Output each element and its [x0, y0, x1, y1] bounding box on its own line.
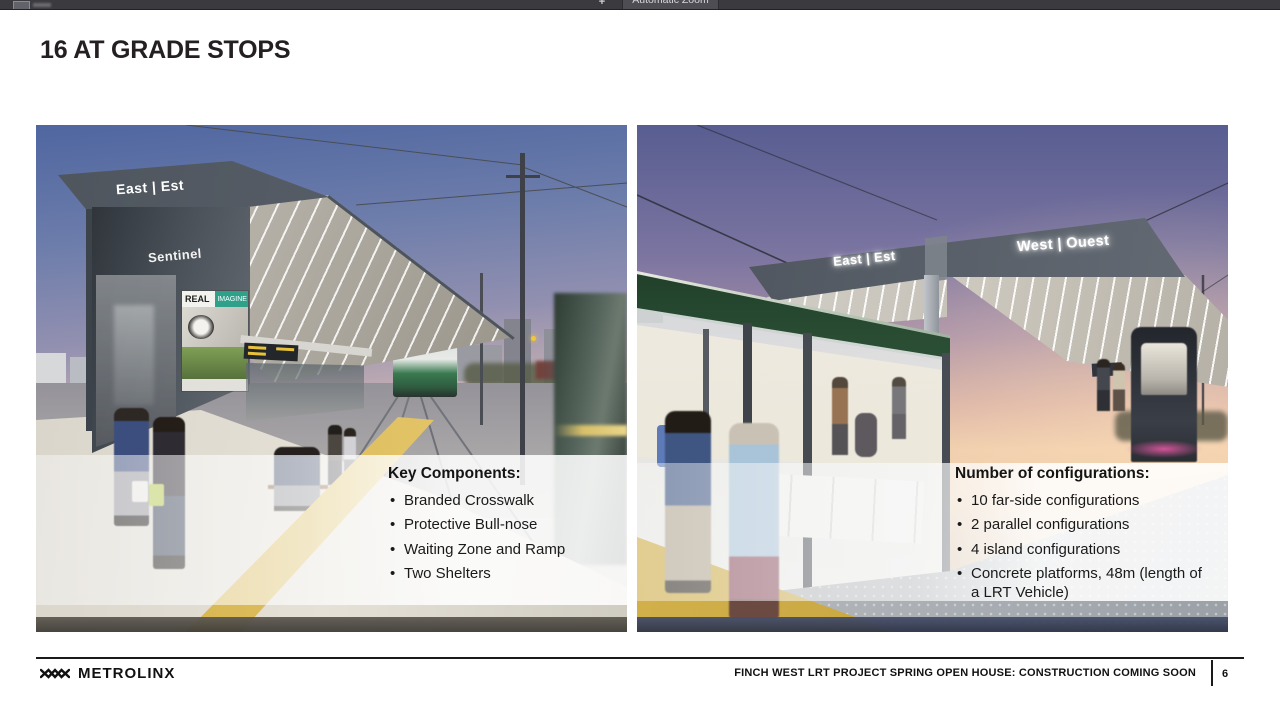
footer-rule	[36, 657, 1244, 659]
page-number-input[interactable]	[13, 1, 30, 10]
next-train-display-illustration	[244, 343, 299, 362]
list-item: Protective Bull-nose	[388, 515, 620, 534]
footer-divider	[1211, 660, 1213, 686]
person-illustration	[1113, 363, 1125, 411]
ad-word-imagine: IMAGINE	[215, 291, 248, 307]
crosswalk-signal-illustration	[531, 336, 536, 341]
list-item: Concrete platforms, 48m (length of a LRT…	[955, 564, 1211, 602]
right-station-rendering: East | Est West | Ouest Number of config…	[637, 125, 1228, 632]
ad-url-bar	[182, 379, 248, 391]
image-bottom-band	[36, 617, 627, 632]
callout-list: Branded Crosswalk Protective Bull-nose W…	[388, 491, 620, 583]
page-count-label	[33, 3, 51, 7]
brand-wordmark: METROLINX	[78, 665, 175, 682]
slide-title: 16 AT GRADE STOPS	[40, 36, 290, 65]
list-item: Branded Crosswalk	[388, 491, 620, 510]
callout-heading: Key Components:	[388, 465, 620, 483]
image-bottom-band	[637, 617, 1228, 632]
list-item: 10 far-side configurations	[955, 491, 1211, 510]
left-station-rendering: REAL IMAGINE East | Est Sentinel Key Com…	[36, 125, 627, 632]
passenger-illustration	[855, 413, 877, 457]
lrv-windshield-illustration	[1141, 343, 1187, 395]
zoom-level-label: Automatic Zoom	[623, 0, 718, 6]
person-illustration	[1097, 359, 1110, 411]
catenary-pole-illustration	[520, 153, 525, 485]
configurations-callout: Number of configurations: 10 far-side co…	[955, 465, 1211, 608]
list-item: Waiting Zone and Ramp	[388, 540, 620, 559]
page-number: 6	[1222, 668, 1228, 680]
ad-poster: REAL IMAGINE	[182, 291, 248, 391]
zoom-in-button[interactable]: +	[596, 0, 608, 9]
ad-word-real: REAL	[182, 291, 215, 307]
pdf-toolbar: + Automatic Zoom	[0, 0, 1280, 10]
pdf-viewer-screen: + Automatic Zoom 16 AT GRADE STOPS	[0, 0, 1280, 720]
list-item: 4 island configurations	[955, 540, 1211, 559]
key-components-callout: Key Components: Branded Crosswalk Protec…	[388, 465, 620, 589]
callout-heading: Number of configurations:	[955, 465, 1211, 483]
passenger-illustration	[892, 377, 906, 439]
ad-grass-illustration	[182, 347, 248, 379]
callout-list: 10 far-side configurations 2 parallel co…	[955, 491, 1211, 603]
distant-lrv-illustration	[1131, 327, 1197, 462]
shelter-column-illustration	[86, 209, 92, 431]
passenger-illustration	[832, 377, 848, 455]
list-item: Two Shelters	[388, 564, 620, 583]
ad-photo-illustration	[182, 307, 248, 347]
list-item: 2 parallel configurations	[955, 515, 1211, 534]
metrolinx-logo: METROLINX	[40, 665, 175, 682]
metrolinx-ribbon-icon	[40, 666, 70, 682]
ad-poster-headline: REAL IMAGINE	[182, 291, 248, 307]
footer-project-title: FINCH WEST LRT PROJECT SPRING OPEN HOUSE…	[734, 667, 1196, 679]
catenary-pole-illustration	[480, 273, 483, 425]
zoom-level-select[interactable]: Automatic Zoom	[622, 0, 719, 9]
